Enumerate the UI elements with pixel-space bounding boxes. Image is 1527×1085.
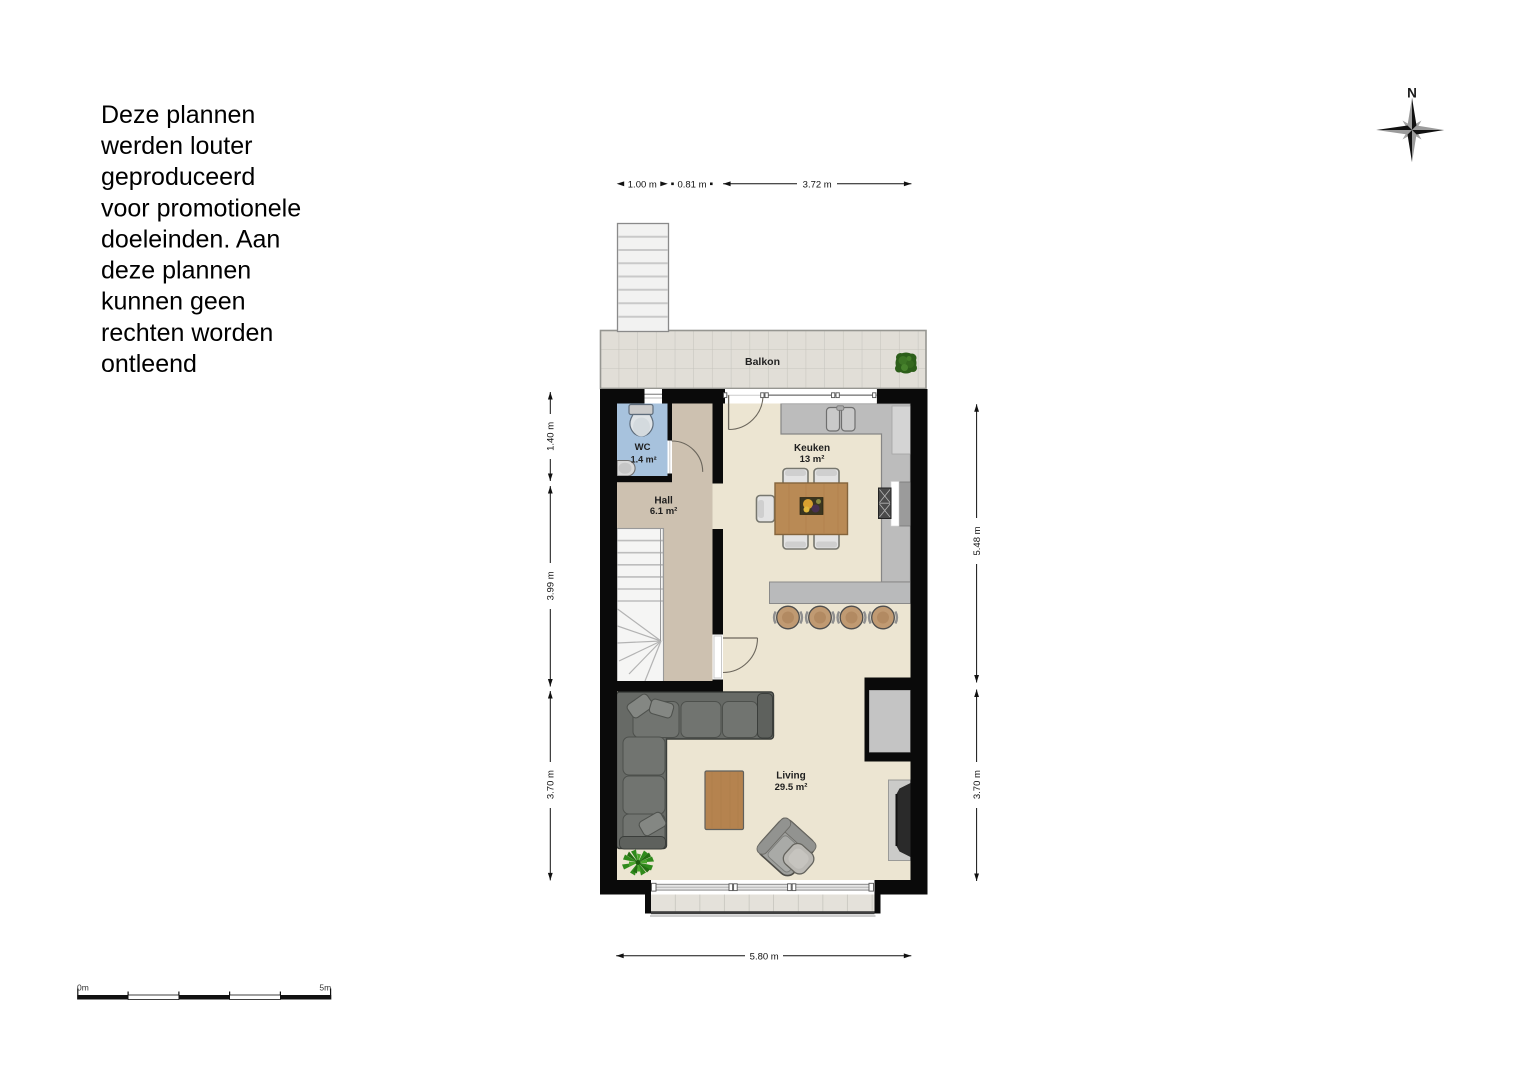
svg-text:Deze plannen: Deze plannen [101, 101, 255, 129]
svg-text:3.99 m: 3.99 m [546, 571, 557, 600]
svg-text:3.70 m: 3.70 m [972, 770, 983, 799]
svg-text:rechten worden: rechten worden [101, 319, 273, 347]
svg-text:3.70 m: 3.70 m [546, 770, 557, 799]
svg-text:1.4 m²: 1.4 m² [631, 454, 657, 464]
svg-text:5m: 5m [319, 983, 331, 993]
svg-text:Balkon: Balkon [745, 356, 780, 368]
svg-text:doeleinden. Aan: doeleinden. Aan [101, 225, 280, 253]
svg-text:1.00 m: 1.00 m [628, 179, 657, 190]
svg-text:ontleend: ontleend [101, 350, 197, 378]
svg-text:voor promotionele: voor promotionele [101, 194, 301, 222]
svg-text:geproduceerd: geproduceerd [101, 163, 255, 191]
svg-text:6.1 m²: 6.1 m² [650, 506, 677, 517]
svg-text:5.48 m: 5.48 m [972, 526, 983, 555]
svg-text:5.80 m: 5.80 m [750, 951, 779, 962]
svg-text:deze plannen: deze plannen [101, 257, 251, 285]
svg-text:1.40 m: 1.40 m [546, 422, 557, 451]
svg-text:Keuken: Keuken [794, 443, 830, 454]
svg-text:werden louter: werden louter [100, 132, 252, 160]
svg-text:0.81 m: 0.81 m [677, 179, 706, 190]
svg-text:Living: Living [776, 771, 805, 782]
svg-text:0m: 0m [77, 983, 89, 993]
svg-text:29.5 m²: 29.5 m² [775, 782, 808, 793]
svg-text:kunnen geen: kunnen geen [101, 288, 246, 316]
svg-text:WC: WC [635, 442, 651, 453]
svg-text:Hall: Hall [654, 495, 673, 506]
svg-text:13 m²: 13 m² [800, 454, 825, 465]
svg-text:3.72 m: 3.72 m [803, 179, 832, 190]
